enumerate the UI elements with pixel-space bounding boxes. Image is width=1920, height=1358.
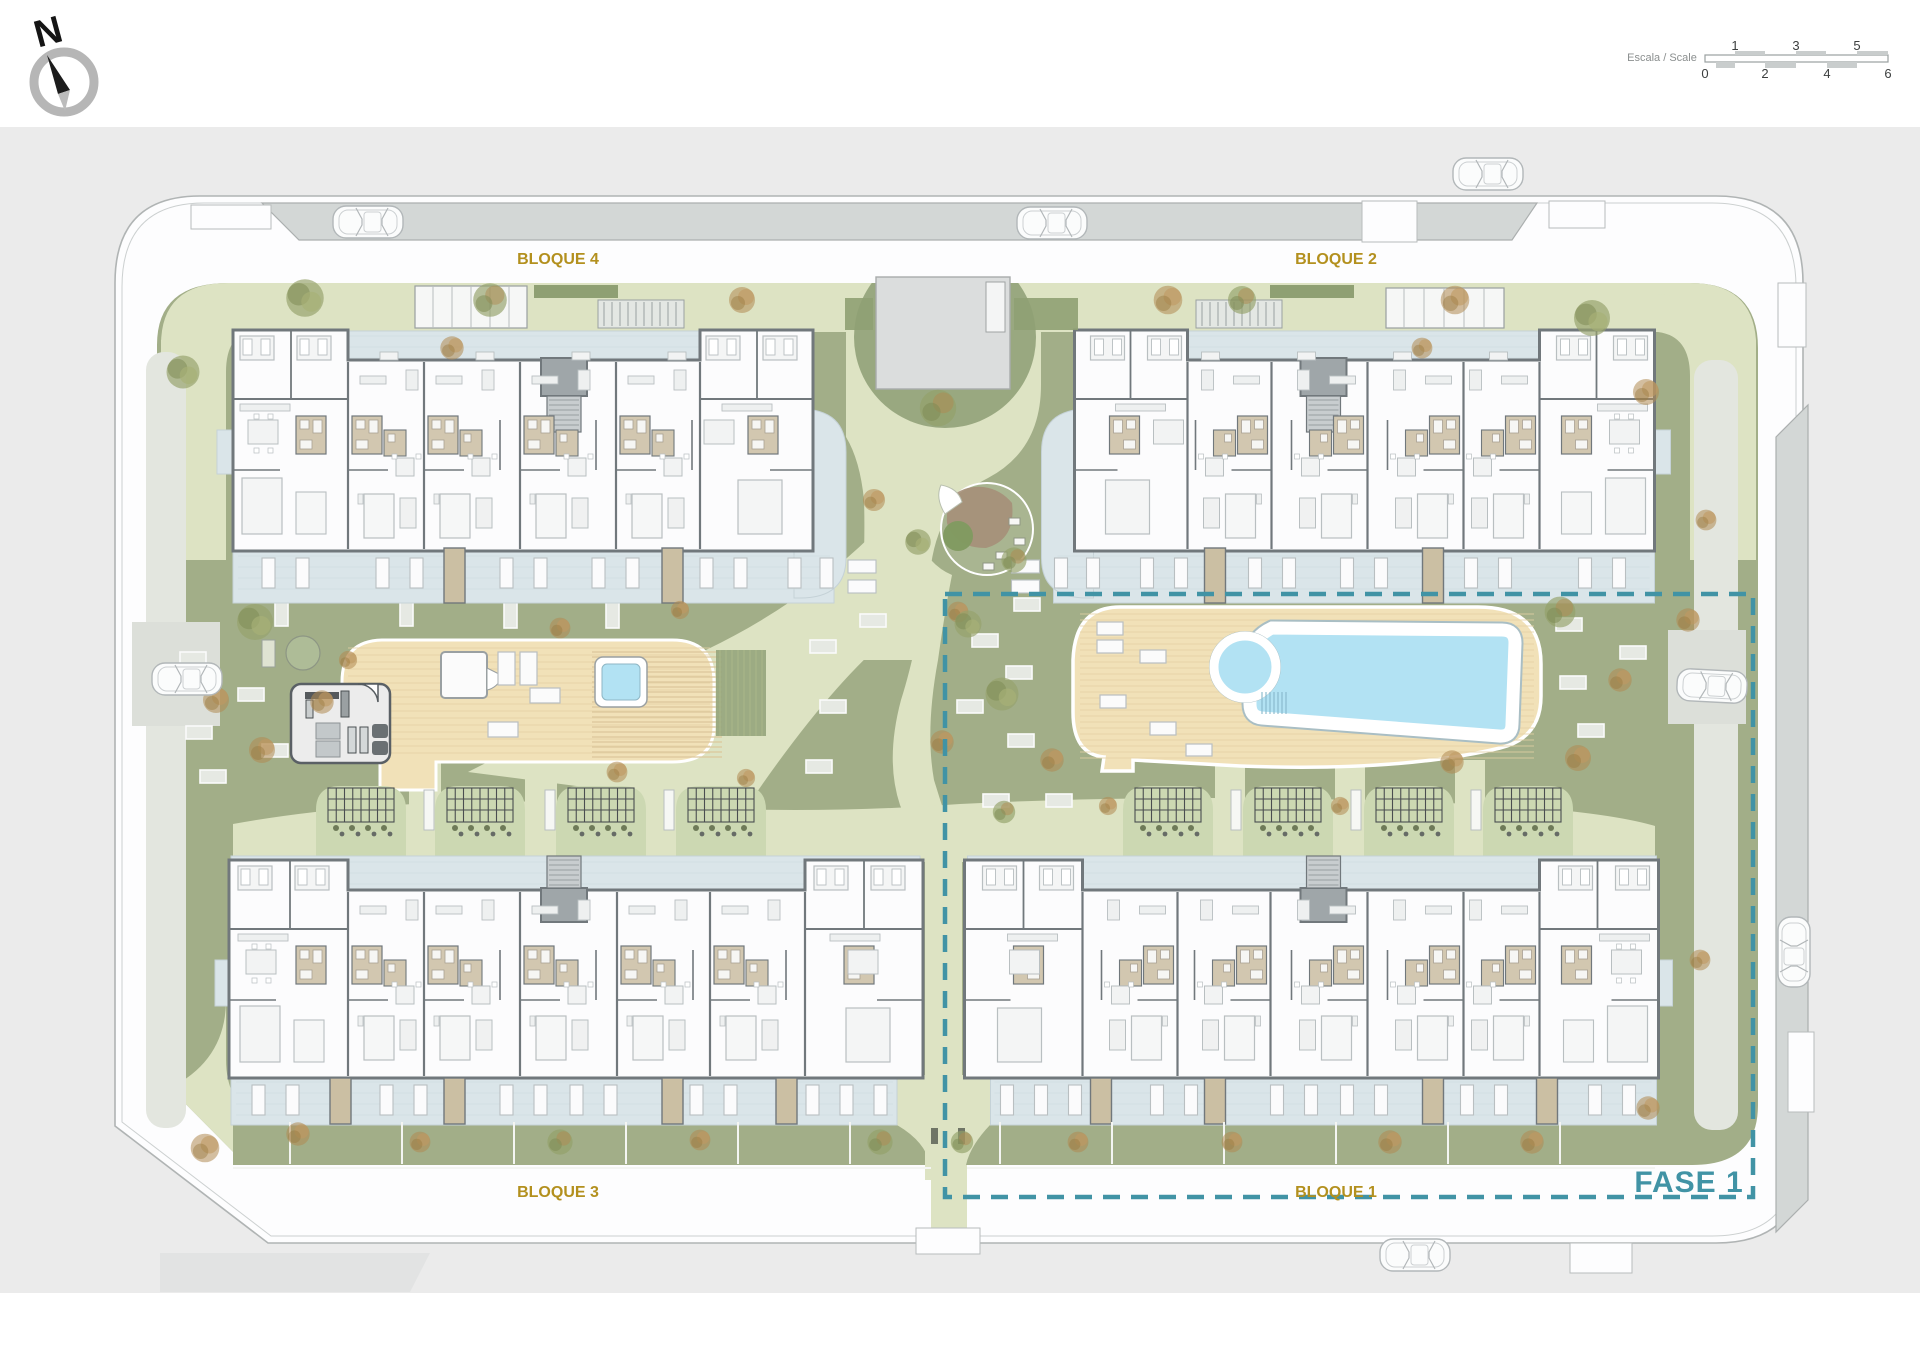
svg-text:5: 5 <box>1853 38 1860 53</box>
svg-text:BLOQUE 1: BLOQUE 1 <box>1295 1184 1377 1201</box>
svg-text:FASE 1: FASE 1 <box>1634 1166 1743 1199</box>
svg-text:0: 0 <box>1701 66 1708 81</box>
svg-text:6: 6 <box>1884 66 1891 81</box>
svg-text:3: 3 <box>1792 38 1799 53</box>
svg-text:BLOQUE 4: BLOQUE 4 <box>517 251 599 268</box>
svg-text:BLOQUE 2: BLOQUE 2 <box>1295 251 1377 268</box>
svg-text:2: 2 <box>1761 66 1768 81</box>
svg-text:BLOQUE 3: BLOQUE 3 <box>517 1184 599 1201</box>
svg-text:1: 1 <box>1731 38 1738 53</box>
svg-text:Escala / Scale: Escala / Scale <box>1627 52 1697 64</box>
svg-text:4: 4 <box>1823 66 1830 81</box>
